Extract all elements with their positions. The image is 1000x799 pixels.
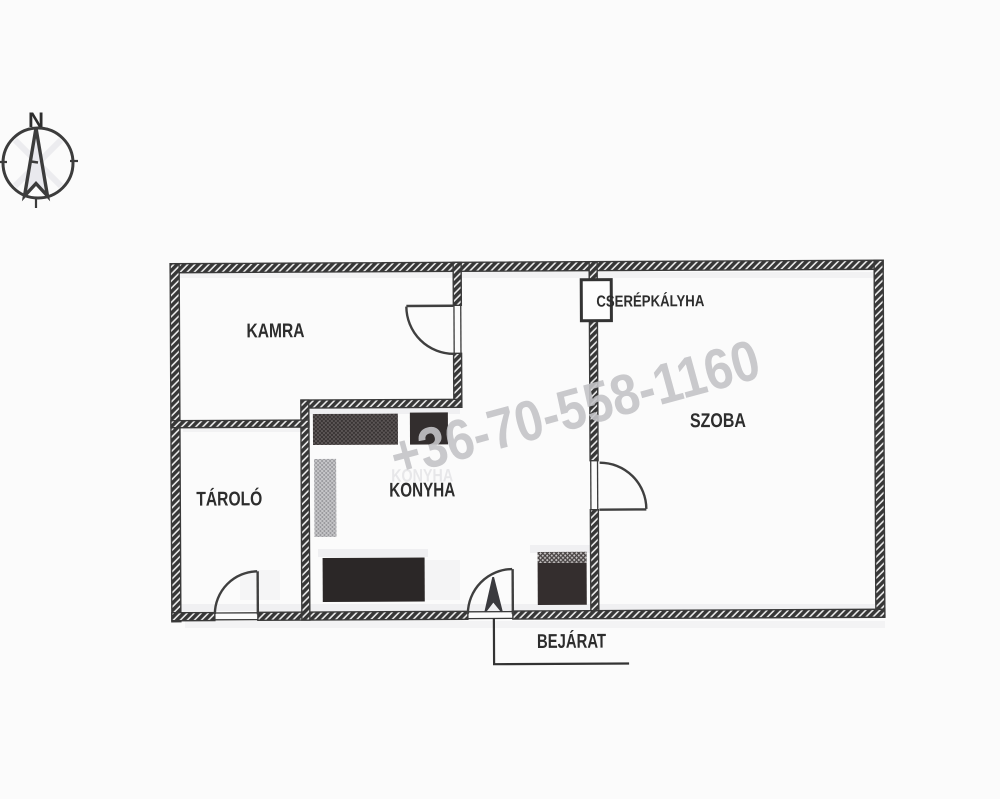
svg-text:SZOBA: SZOBA: [690, 410, 746, 432]
svg-text:BEJÁRAT: BEJÁRAT: [537, 630, 606, 653]
svg-text:TÁROLÓ: TÁROLÓ: [196, 486, 262, 510]
svg-text:N: N: [28, 109, 44, 132]
svg-text:CSERÉPKÁLYHA: CSERÉPKÁLYHA: [596, 291, 704, 311]
svg-text:KAMRA: KAMRA: [246, 320, 304, 342]
